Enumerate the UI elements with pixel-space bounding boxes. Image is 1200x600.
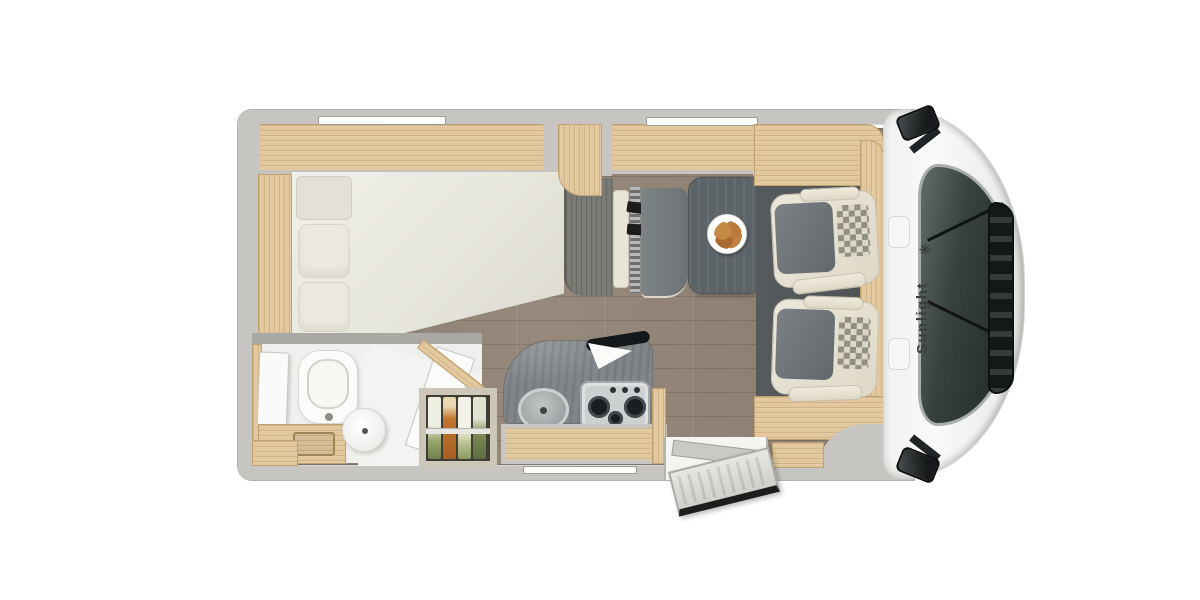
seat-armrest — [788, 385, 862, 403]
seat-armrest — [803, 295, 863, 310]
cab-seat-passenger — [770, 189, 881, 288]
seat-backrest — [774, 202, 836, 275]
front-grille — [988, 202, 1014, 394]
stove-burner — [624, 396, 646, 418]
brand-wordmark: Sunlight — [914, 262, 936, 374]
bedroom-bathroom-wall — [252, 333, 482, 341]
roof-hatch — [888, 216, 910, 248]
dinner-plate — [707, 214, 747, 254]
basin-drain — [362, 428, 368, 434]
pillow — [298, 224, 350, 278]
cabinet-divider — [543, 124, 559, 176]
duvet — [296, 176, 352, 220]
seat-headrest-checker — [837, 316, 871, 369]
stove-knob — [622, 387, 628, 393]
seat-headrest-checker — [836, 204, 871, 258]
gas-stove — [580, 381, 650, 429]
entry-cabinet — [772, 442, 824, 468]
brand-logo-icon: ✳ — [914, 242, 936, 260]
window-top-left — [318, 116, 446, 125]
bench-cushion — [641, 188, 688, 298]
toilet-lid — [307, 359, 349, 409]
bathroom-door-open — [257, 351, 290, 428]
bedroom-shelf-left — [258, 174, 292, 334]
plate-of-food — [714, 221, 742, 249]
stove-knob — [610, 387, 616, 393]
seat-backrest — [775, 308, 835, 380]
cab-body: ✳ Sunlight — [884, 110, 1024, 478]
vanity-sink-cutout — [293, 432, 335, 456]
sink-drain — [540, 407, 547, 414]
rack-shelf — [426, 428, 490, 434]
pillow — [298, 282, 350, 332]
cab-seat-driver — [770, 298, 879, 398]
roof-hatch — [888, 338, 910, 370]
motorhome-floorplan: ✳ Sunlight — [0, 0, 1200, 600]
bathroom-corner-shelf — [252, 440, 298, 466]
toilet-flush-button — [325, 413, 333, 421]
window-bottom — [523, 466, 637, 474]
stove-burner — [588, 396, 610, 418]
washbasin — [342, 408, 386, 452]
kitchen-front-panel — [501, 424, 667, 464]
dinette-bench — [613, 186, 688, 298]
pantry-rack — [419, 388, 497, 468]
wardrobe-cabinet — [558, 124, 602, 196]
stove-knob — [634, 387, 640, 393]
window-top-right — [646, 117, 758, 126]
